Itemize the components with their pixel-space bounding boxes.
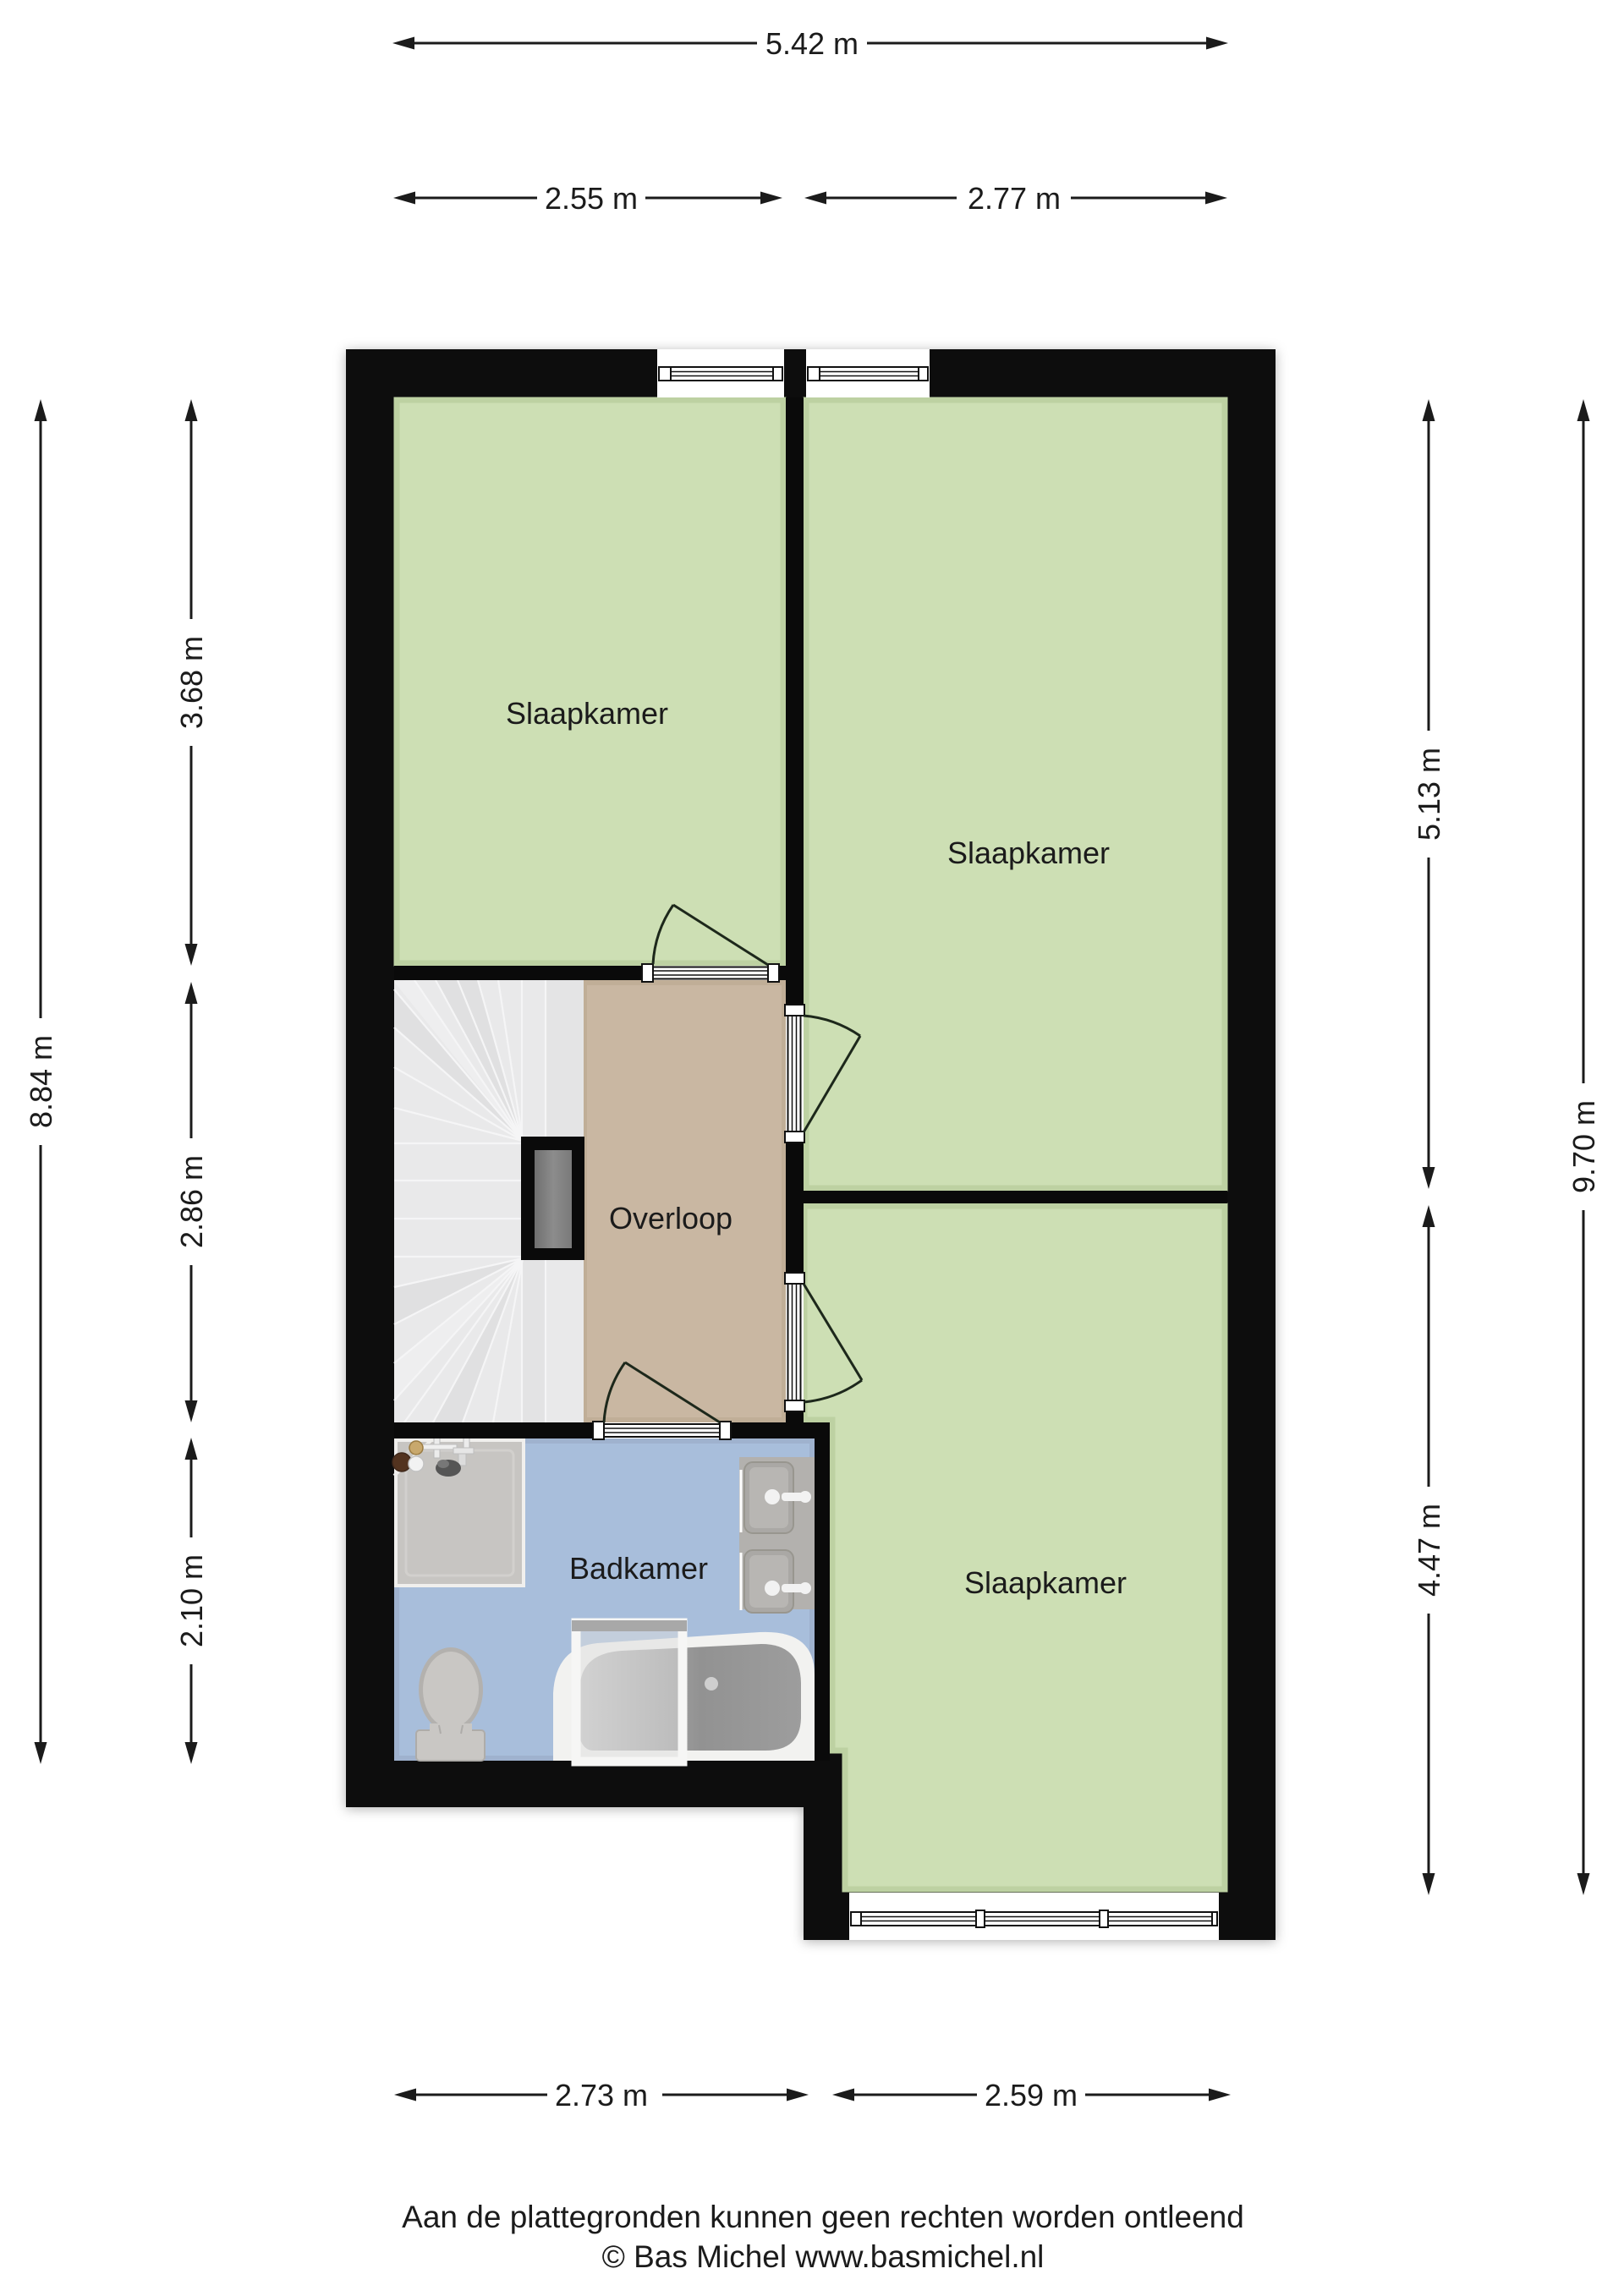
svg-text:2.10 m: 2.10 m bbox=[174, 1554, 209, 1647]
svg-text:8.84 m: 8.84 m bbox=[24, 1035, 58, 1128]
svg-text:Badkamer: Badkamer bbox=[569, 1551, 708, 1586]
svg-text:5.13 m: 5.13 m bbox=[1412, 748, 1446, 841]
svg-text:Slaapkamer: Slaapkamer bbox=[506, 696, 668, 731]
svg-text:9.70 m: 9.70 m bbox=[1566, 1100, 1601, 1193]
svg-text:5.42 m: 5.42 m bbox=[765, 26, 859, 61]
svg-text:2.73 m: 2.73 m bbox=[555, 2078, 648, 2112]
svg-text:4.47 m: 4.47 m bbox=[1412, 1504, 1446, 1597]
svg-text:2.86 m: 2.86 m bbox=[174, 1155, 209, 1248]
svg-text:2.55 m: 2.55 m bbox=[545, 181, 638, 216]
svg-text:© Bas Michel www.basmichel.nl: © Bas Michel www.basmichel.nl bbox=[602, 2239, 1045, 2274]
svg-text:Slaapkamer: Slaapkamer bbox=[947, 836, 1110, 870]
svg-text:3.68 m: 3.68 m bbox=[174, 636, 209, 729]
svg-text:2.77 m: 2.77 m bbox=[968, 181, 1061, 216]
svg-text:Overloop: Overloop bbox=[609, 1201, 732, 1236]
svg-text:2.59 m: 2.59 m bbox=[985, 2078, 1078, 2112]
svg-text:Slaapkamer: Slaapkamer bbox=[964, 1565, 1127, 1600]
svg-text:Aan de plattegronden kunnen ge: Aan de plattegronden kunnen geen rechten… bbox=[402, 2200, 1244, 2234]
